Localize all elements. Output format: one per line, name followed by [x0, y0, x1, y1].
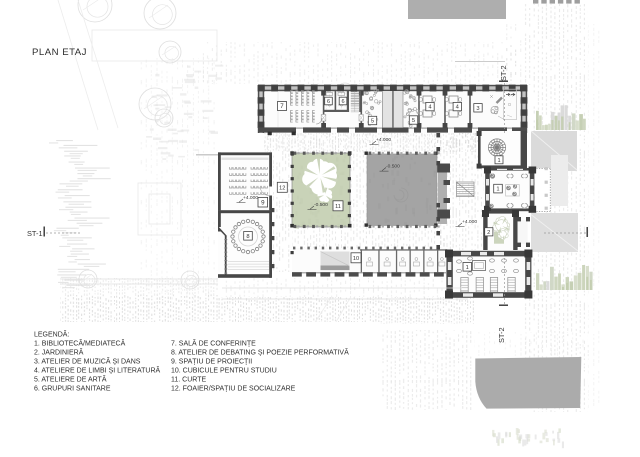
svg-text:6. GRUPURI SANITARE: 6. GRUPURI SANITARE [34, 386, 111, 393]
svg-text:-0.500: -0.500 [386, 164, 400, 170]
svg-text:12. FOAIER/SPAȚIU DE SOCIALIZA: 12. FOAIER/SPAȚIU DE SOCIALIZARE [171, 386, 296, 393]
svg-text:5: 5 [371, 119, 374, 125]
svg-text:3. ATELIER DE MUZICĂ ȘI DANS: 3. ATELIER DE MUZICĂ ȘI DANS [34, 357, 141, 366]
svg-text:11: 11 [335, 204, 341, 210]
svg-text:10. CUBICULE PENTRU STUDIU: 10. CUBICULE PENTRU STUDIU [171, 368, 277, 375]
svg-text:12: 12 [279, 185, 285, 191]
svg-text:10: 10 [353, 256, 359, 262]
svg-text:2. JARDINIERĂ: 2. JARDINIERĂ [34, 348, 84, 357]
svg-text:PLAN ETAJ: PLAN ETAJ [32, 47, 87, 58]
svg-text:LEGENDĂ:: LEGENDĂ: [34, 330, 69, 339]
svg-text:ST-2: ST-2 [499, 65, 508, 81]
svg-text:2: 2 [487, 230, 490, 236]
svg-text:-0.500: -0.500 [314, 202, 328, 208]
svg-text:7: 7 [280, 103, 284, 110]
svg-text:6: 6 [327, 99, 330, 105]
svg-text:1: 1 [497, 158, 500, 164]
svg-text:+4.000: +4.000 [243, 195, 258, 201]
svg-text:3: 3 [476, 106, 479, 112]
svg-text:1: 1 [466, 265, 469, 271]
svg-text:+4.000: +4.000 [376, 137, 391, 143]
svg-text:1. BIBLIOTECĂ/MEDIATECĂ: 1. BIBLIOTECĂ/MEDIATECĂ [34, 339, 126, 348]
svg-text:ST-2: ST-2 [497, 327, 506, 343]
svg-text:+4.000: +4.000 [462, 219, 477, 225]
svg-text:6: 6 [341, 99, 344, 105]
svg-text:1: 1 [496, 187, 499, 193]
svg-text:5: 5 [412, 118, 415, 124]
svg-text:7. SALĂ DE CONFERINȚE: 7. SALĂ DE CONFERINȚE [171, 339, 256, 348]
svg-text:8. ATELIER DE DEBATING ȘI POEZ: 8. ATELIER DE DEBATING ȘI POEZIE PERFORM… [171, 348, 349, 357]
svg-text:9: 9 [261, 199, 265, 206]
svg-text:9. SPAȚIU DE PROIECȚII: 9. SPAȚIU DE PROIECȚII [171, 359, 252, 366]
svg-text:11. CURTE: 11. CURTE [171, 377, 206, 384]
svg-text:8: 8 [246, 234, 249, 240]
svg-text:5. ATELIERE DE ARTĂ: 5. ATELIERE DE ARTĂ [34, 375, 107, 384]
svg-text:4. ATELIERE DE LIMBI ȘI LITERA: 4. ATELIERE DE LIMBI ȘI LITERATURĂ [34, 366, 160, 375]
svg-text:ST-1: ST-1 [27, 229, 43, 238]
